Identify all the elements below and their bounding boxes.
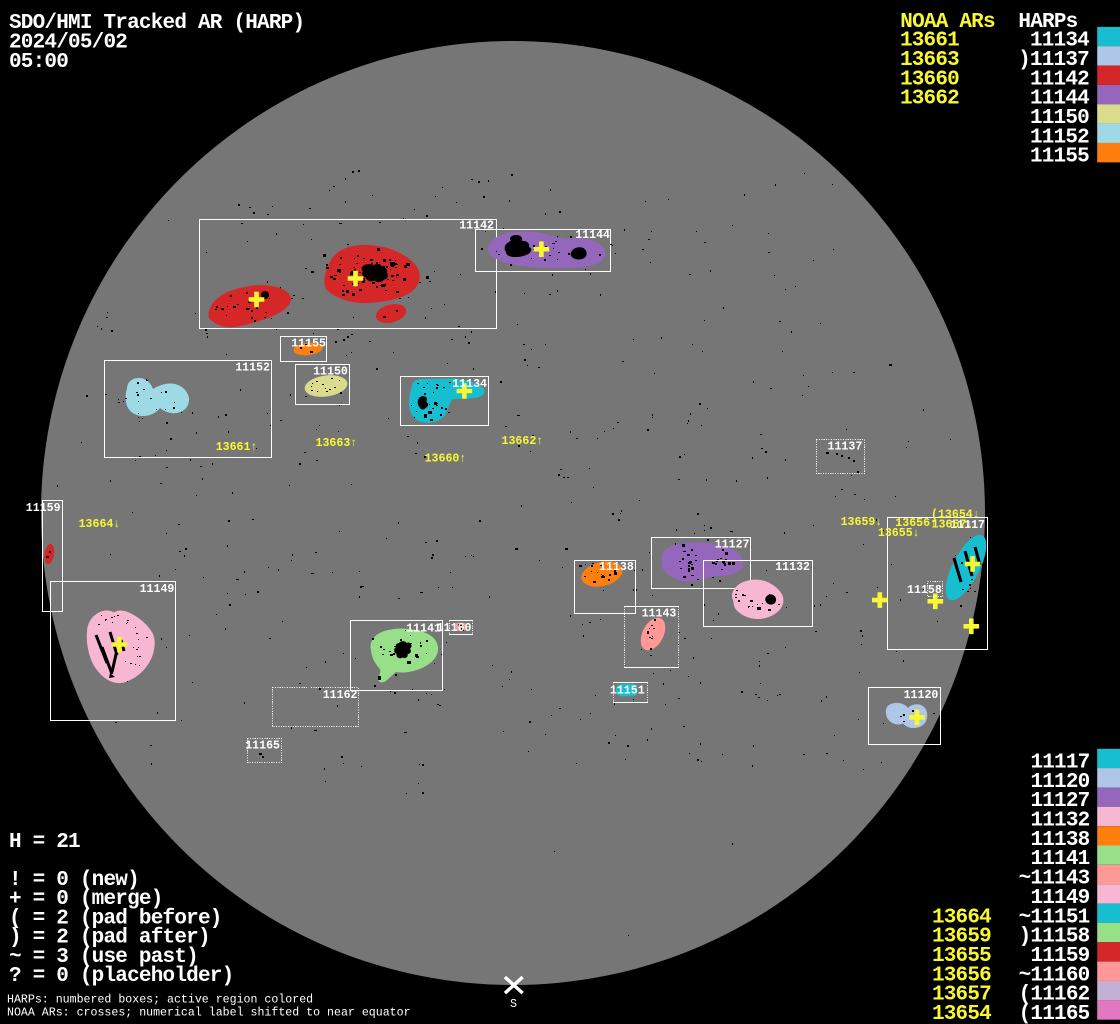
svg-text:11160: 11160 — [437, 622, 472, 635]
svg-text:11137: 11137 — [828, 441, 863, 454]
svg-text:13657↓: 13657↓ — [932, 519, 974, 532]
svg-text:11155: 11155 — [291, 338, 326, 351]
svg-text:NOAA ARs: crosses; numerical l: NOAA ARs: crosses; numerical label shift… — [7, 1007, 411, 1020]
svg-text:S: S — [510, 998, 517, 1011]
svg-text:(11165: (11165 — [1019, 1003, 1090, 1024]
svg-text:13660↑: 13660↑ — [425, 452, 467, 465]
svg-text:11120: 11120 — [904, 689, 939, 702]
svg-text:HARPs: numbered boxes; active: HARPs: numbered boxes; active region col… — [7, 994, 313, 1007]
svg-text:13662↑: 13662↑ — [502, 435, 544, 448]
svg-text:11144: 11144 — [575, 229, 610, 242]
svg-text:13664↓: 13664↓ — [79, 518, 121, 531]
svg-text:11152: 11152 — [235, 361, 270, 374]
svg-text:11142: 11142 — [459, 220, 494, 233]
svg-text:11134: 11134 — [452, 378, 487, 391]
svg-text:11158: 11158 — [907, 584, 942, 597]
svg-text:13662: 13662 — [900, 88, 959, 111]
svg-text:11138: 11138 — [599, 561, 634, 574]
svg-text:11149: 11149 — [140, 583, 175, 596]
svg-text:H = 21: H = 21 — [9, 831, 80, 854]
svg-text:11159: 11159 — [26, 502, 61, 515]
svg-text:05:00: 05:00 — [9, 51, 68, 74]
svg-text:? = 0 (placeholder): ? = 0 (placeholder) — [9, 965, 233, 988]
svg-text:11132: 11132 — [775, 561, 810, 574]
svg-text:11127: 11127 — [715, 539, 750, 552]
svg-text:11150: 11150 — [313, 365, 348, 378]
svg-text:13661↑: 13661↑ — [216, 441, 258, 454]
svg-text:11143: 11143 — [642, 608, 677, 621]
svg-text:13654: 13654 — [932, 1003, 991, 1024]
svg-text:11165: 11165 — [245, 740, 280, 753]
svg-text:11162: 11162 — [323, 689, 358, 702]
svg-text:11151: 11151 — [610, 685, 645, 698]
svg-text:11155: 11155 — [1030, 146, 1089, 169]
svg-text:13663↑: 13663↑ — [316, 437, 358, 450]
svg-text:13659↓: 13659↓ — [841, 516, 883, 529]
